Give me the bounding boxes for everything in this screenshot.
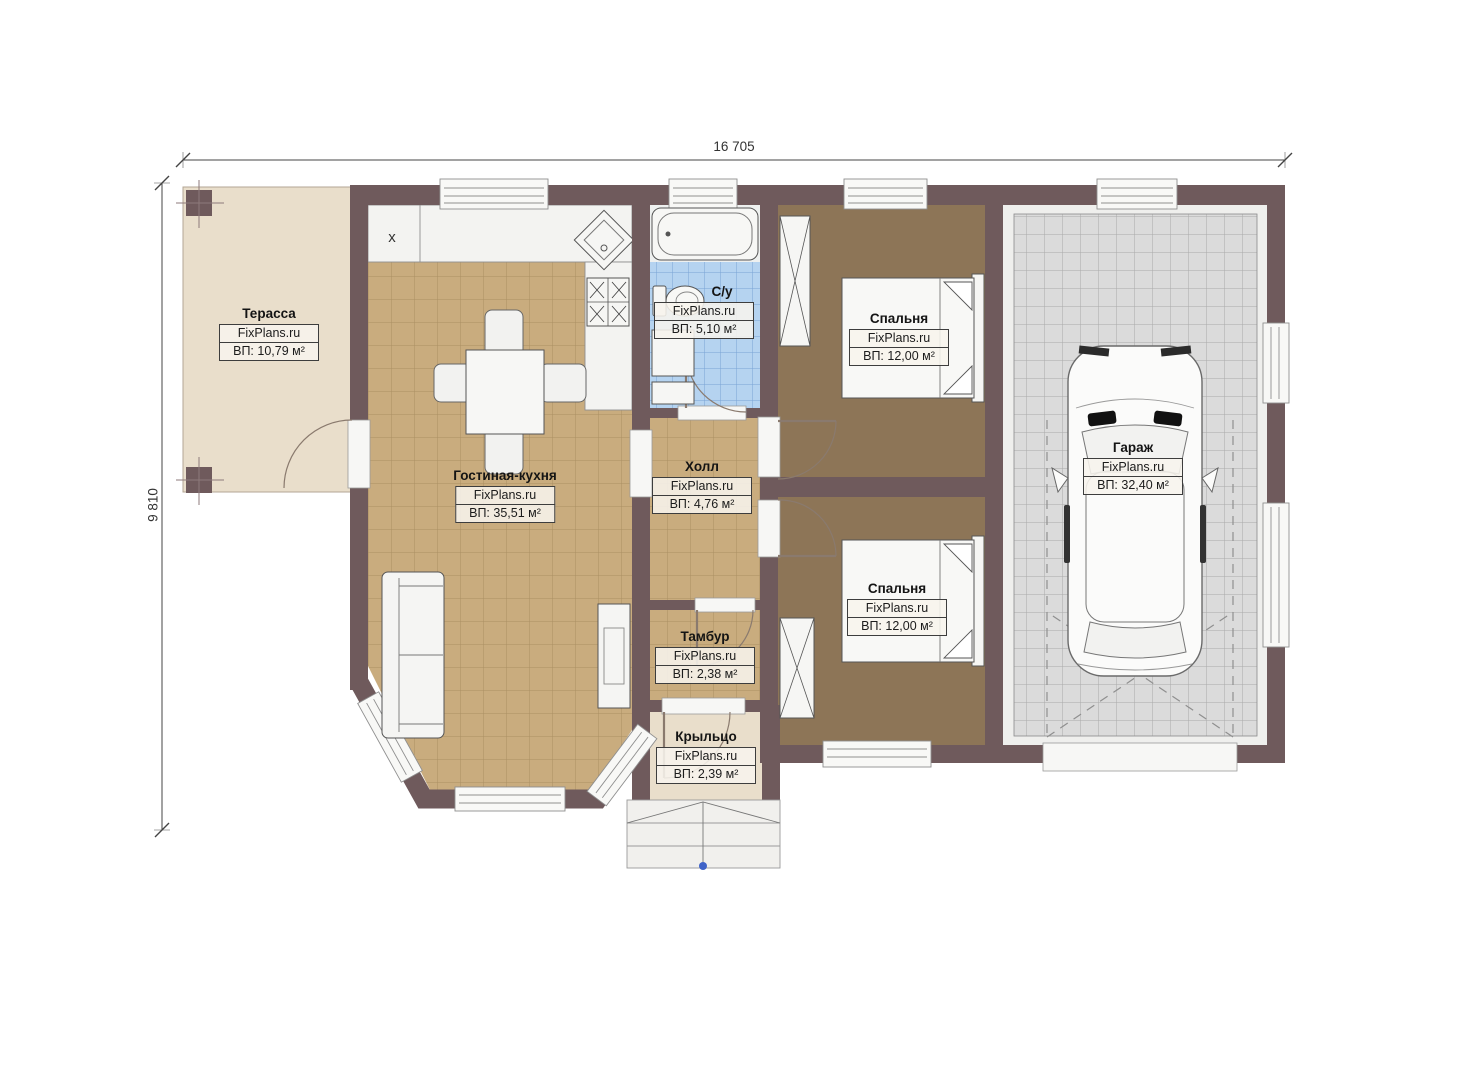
vestibule-porch-opening — [662, 698, 745, 714]
dimension-height-label: 9 810 — [146, 488, 161, 522]
window-bedroom2-bottom — [823, 741, 931, 767]
area-label: ВП: 12,00 м² — [847, 617, 947, 636]
window-garage-right-1 — [1263, 323, 1289, 403]
room-name: Гараж — [1113, 440, 1153, 455]
window-bay-bottom — [455, 787, 565, 811]
window-kitchen — [440, 179, 548, 209]
room-label-vestibule: Тамбур FixPlans.ru ВП: 2,38 м² — [655, 629, 755, 684]
area-label: ВП: 35,51 м² — [455, 504, 555, 523]
room-name: Терасса — [242, 306, 296, 321]
porch-steps — [627, 800, 780, 870]
room-label-bedroom-1: Спальня FixPlans.ru ВП: 12,00 м² — [849, 311, 949, 366]
wardrobe-bedroom2 — [780, 618, 814, 718]
brand-label: FixPlans.ru — [655, 647, 755, 666]
room-label-terrace: Терасса FixPlans.ru ВП: 10,79 м² — [219, 306, 319, 361]
brand-label: FixPlans.ru — [656, 747, 756, 766]
chair — [540, 364, 586, 402]
wardrobe-bedroom1 — [780, 216, 810, 346]
room-name: Холл — [685, 459, 719, 474]
floor-plan-canvas: x — [0, 0, 1474, 1080]
area-label: ВП: 2,39 м² — [656, 765, 756, 784]
bathroom-door-opening — [678, 406, 746, 420]
dimension-line-top — [176, 152, 1292, 168]
room-label-bathroom: С/у FixPlans.ru ВП: 5,10 м² — [654, 284, 754, 339]
brand-label: FixPlans.ru — [455, 486, 555, 505]
bedroom2-door-opening — [758, 500, 780, 557]
room-name: Тамбур — [681, 629, 730, 644]
room-label-porch: Крыльцо FixPlans.ru ВП: 2,39 м² — [656, 729, 756, 784]
room-name: Крыльцо — [675, 729, 736, 744]
car — [1052, 345, 1218, 676]
garage-door — [1043, 743, 1237, 771]
bathtub — [652, 208, 758, 260]
area-label: ВП: 2,38 м² — [655, 665, 755, 684]
sofa — [382, 572, 444, 738]
stove — [587, 278, 629, 326]
brand-label: FixPlans.ru — [847, 599, 947, 618]
room-label-hall: Холл FixPlans.ru ВП: 4,76 м² — [652, 459, 752, 514]
living-hall-passage — [630, 430, 652, 497]
room-label-bedroom-2: Спальня FixPlans.ru ВП: 12,00 м² — [847, 581, 947, 636]
area-label: ВП: 5,10 м² — [654, 320, 754, 339]
window-garage-right-2 — [1263, 503, 1289, 647]
window-bedroom1 — [844, 179, 927, 209]
room-name: Спальня — [870, 311, 928, 326]
hall-vestibule-opening — [695, 598, 755, 612]
terrace-door-opening — [348, 420, 370, 488]
dining-table — [466, 350, 544, 434]
brand-label: FixPlans.ru — [219, 324, 319, 343]
room-name: Спальня — [868, 581, 926, 596]
room-name: Гостиная-кухня — [453, 468, 556, 483]
area-label: ВП: 12,00 м² — [849, 347, 949, 366]
fridge-marker: x — [388, 229, 396, 246]
brand-label: FixPlans.ru — [849, 329, 949, 348]
room-label-garage: Гараж FixPlans.ru ВП: 32,40 м² — [1083, 440, 1183, 495]
window-bathroom — [669, 179, 737, 209]
cabinet — [598, 604, 630, 708]
brand-label: FixPlans.ru — [1083, 458, 1183, 477]
bedroom1-door-opening — [758, 417, 780, 477]
brand-label: FixPlans.ru — [654, 302, 754, 321]
room-label-living-kitchen: Гостиная-кухня FixPlans.ru ВП: 35,51 м² — [453, 468, 556, 523]
area-label: ВП: 10,79 м² — [219, 342, 319, 361]
floor-plan-drawing: x — [0, 0, 1474, 1080]
dimension-width-label: 16 705 — [713, 139, 754, 154]
area-label: ВП: 4,76 м² — [652, 495, 752, 514]
area-label: ВП: 32,40 м² — [1083, 476, 1183, 495]
washing-machine — [652, 330, 694, 404]
room-name: С/у — [711, 284, 732, 299]
chair — [485, 310, 523, 356]
brand-label: FixPlans.ru — [652, 477, 752, 496]
step-marker-dot — [699, 862, 707, 870]
window-garage-top — [1097, 179, 1177, 209]
